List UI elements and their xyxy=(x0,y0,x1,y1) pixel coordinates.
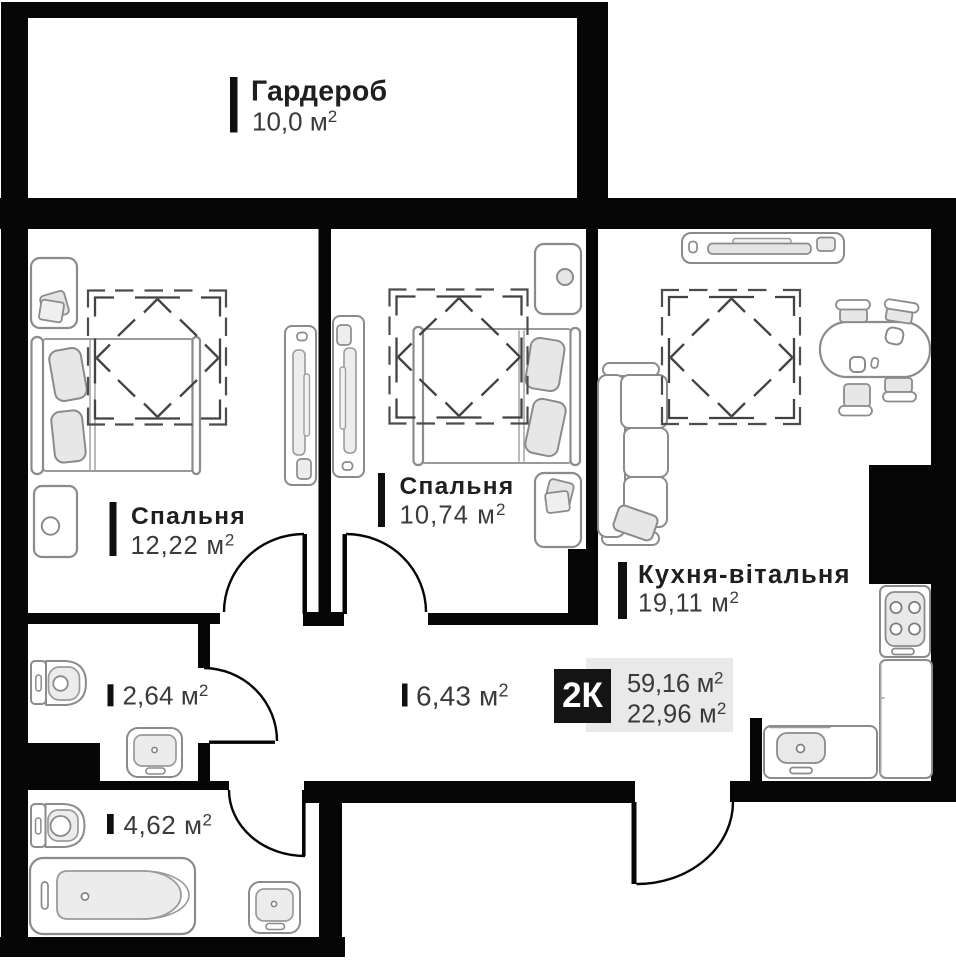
svg-text:6,43 м2: 6,43 м2 xyxy=(416,681,509,712)
svg-text:19,11 м2: 19,11 м2 xyxy=(638,588,740,618)
svg-text:2К: 2К xyxy=(562,676,603,715)
svg-text:Спальня: Спальня xyxy=(131,503,246,530)
svg-text:59,16 м2: 59,16 м2 xyxy=(627,669,723,699)
svg-text:4,62 м2: 4,62 м2 xyxy=(124,810,213,840)
svg-text:Кухня-вітальня: Кухня-вітальня xyxy=(638,561,851,589)
svg-text:Спальня: Спальня xyxy=(400,473,515,500)
svg-text:10,74 м2: 10,74 м2 xyxy=(400,500,507,530)
svg-text:12,22 м2: 12,22 м2 xyxy=(131,531,236,561)
svg-text:2,64 м2: 2,64 м2 xyxy=(123,681,209,711)
svg-text:10,0 м2: 10,0 м2 xyxy=(252,107,337,137)
svg-text:22,96 м2: 22,96 м2 xyxy=(627,699,727,729)
svg-text:Гардероб: Гардероб xyxy=(251,76,387,108)
